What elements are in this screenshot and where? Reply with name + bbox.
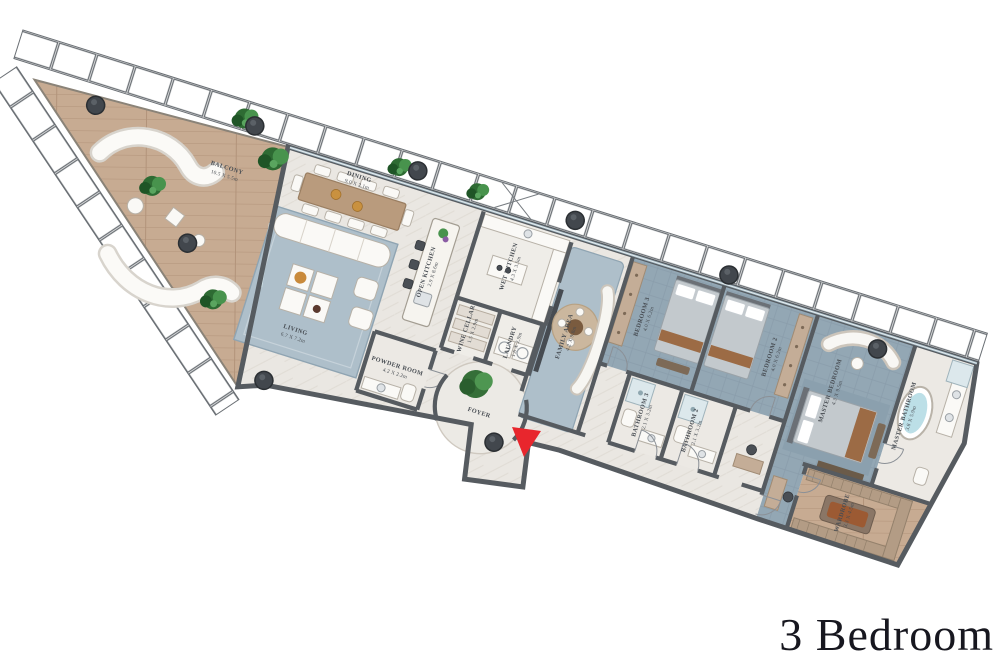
plan-title: 3 Bedroom xyxy=(594,608,994,661)
floor-plan: BALCONY 10.5 X 5.5m DINING 9.0 X 2.1m LI… xyxy=(0,26,998,631)
page: BALCONY 10.5 X 5.5m DINING 9.0 X 2.1m LI… xyxy=(0,0,1000,670)
floor-plan-svg: BALCONY 10.5 X 5.5m DINING 9.0 X 2.1m LI… xyxy=(0,0,1000,670)
